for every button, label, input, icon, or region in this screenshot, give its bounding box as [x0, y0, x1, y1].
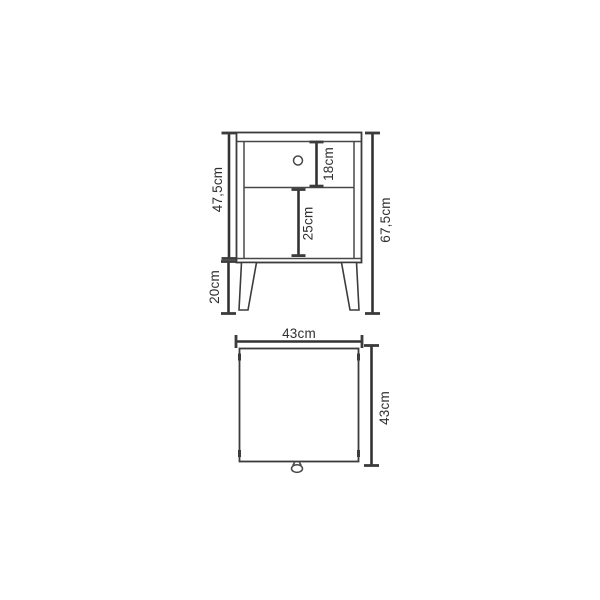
- plan-knob-icon: [292, 462, 303, 473]
- front-left-leg: [239, 263, 257, 311]
- nightstand-dimension-diagram: 47,5cm 20cm 67,5cm 18cm: [0, 0, 600, 600]
- leg-tick-bottom-right: [357, 450, 360, 457]
- dim-carcass-height-label: 47,5cm: [210, 167, 225, 212]
- leg-tick-top-right: [357, 354, 360, 361]
- dim-leg-height-label: 20cm: [207, 270, 222, 304]
- top-plan-view: 43cm 43cm: [235, 326, 393, 472]
- dim-cap: [222, 132, 237, 135]
- dim-plan-depth: 43cm: [364, 344, 392, 467]
- dim-cap: [310, 185, 324, 188]
- dim-cap: [292, 188, 306, 191]
- dim-cap: [221, 260, 236, 263]
- dim-cap: [222, 257, 237, 260]
- dim-drawer-height-label: 18cm: [321, 147, 336, 181]
- dim-cap: [365, 312, 380, 315]
- dim-cap: [235, 335, 238, 348]
- leg-tick-bottom-left: [238, 450, 241, 457]
- technical-drawing-page: 47,5cm 20cm 67,5cm 18cm: [0, 0, 600, 600]
- dim-cap: [361, 335, 364, 348]
- dim-cap: [310, 141, 324, 144]
- dim-drawer-height: 18cm: [310, 141, 337, 188]
- dim-cap: [364, 464, 379, 467]
- leg-tick-top-left: [238, 354, 241, 361]
- dim-overall-height-label: 67,5cm: [378, 197, 393, 242]
- dim-compartment-height-label: 25cm: [301, 207, 316, 241]
- dim-overall-height: 67,5cm: [365, 132, 393, 315]
- dim-carcass-height: 47,5cm: [210, 132, 236, 260]
- dim-cap: [364, 344, 379, 347]
- drawer-knob-icon: [294, 156, 303, 165]
- dim-compartment-height: 25cm: [292, 188, 316, 257]
- front-right-leg: [342, 263, 360, 311]
- top-outline-box: [240, 349, 359, 462]
- dim-plan-width-label: 43cm: [282, 326, 316, 341]
- dim-leg-height: 20cm: [207, 260, 236, 315]
- dim-cap: [365, 132, 380, 135]
- dim-plan-depth-label: 43cm: [377, 391, 392, 425]
- dim-plan-width: 43cm: [235, 326, 364, 348]
- front-elevation-view: 47,5cm 20cm 67,5cm 18cm: [207, 132, 393, 315]
- dim-cap: [221, 312, 236, 315]
- dim-cap: [292, 254, 306, 257]
